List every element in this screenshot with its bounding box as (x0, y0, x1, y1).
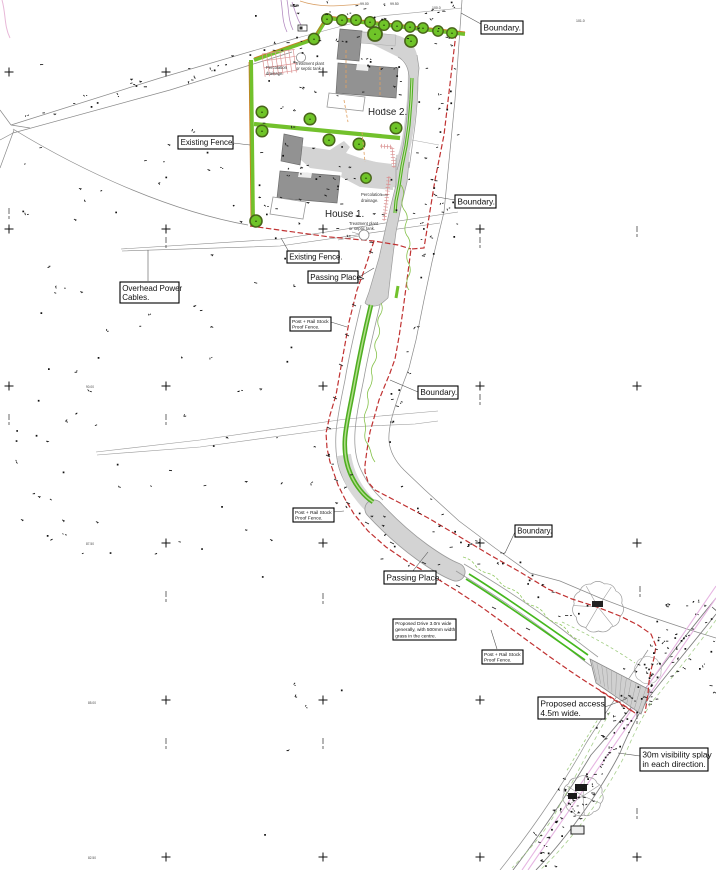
svg-text:30m visibility splay: 30m visibility splay (642, 749, 712, 759)
svg-text:Percolation: Percolation (266, 65, 288, 70)
svg-text:House 1.: House 1. (325, 209, 364, 220)
svg-text:87.50: 87.50 (86, 542, 94, 546)
svg-text:98.00: 98.00 (290, 4, 299, 8)
svg-text:Post + Rail Stock: Post + Rail Stock (292, 319, 329, 325)
svg-text:or septic tank.: or septic tank. (296, 66, 322, 71)
svg-text:90.00: 90.00 (86, 385, 94, 389)
svg-text:Existing Fence.: Existing Fence. (181, 138, 235, 147)
svg-text:99.50: 99.50 (390, 2, 399, 6)
svg-text:Boundary.: Boundary. (457, 196, 495, 206)
svg-text:99.00: 99.00 (360, 2, 369, 6)
svg-text:Boundary.: Boundary. (483, 22, 521, 32)
svg-text:Passing Place.: Passing Place. (386, 572, 441, 582)
svg-text:Cables.: Cables. (122, 293, 149, 302)
svg-text:Proposed Drive 3.0m wide: Proposed Drive 3.0m wide (395, 621, 452, 627)
svg-text:Percolation: Percolation (361, 192, 383, 197)
svg-text:drainage.: drainage. (266, 71, 283, 76)
svg-text:House 2.: House 2. (368, 107, 407, 118)
svg-text:101.0: 101.0 (576, 19, 585, 23)
svg-text:Passing Place.: Passing Place. (310, 273, 363, 282)
svg-text:drainage.: drainage. (361, 198, 378, 203)
svg-text:Proposed access: Proposed access (540, 698, 604, 708)
svg-text:100.0: 100.0 (432, 6, 441, 10)
svg-text:Proof Fence.: Proof Fence. (484, 658, 511, 664)
svg-text:Proof Fence.: Proof Fence. (295, 516, 322, 522)
svg-text:Post + Rail Stock: Post + Rail Stock (484, 652, 521, 658)
svg-text:generally, with 500mm width: generally, with 500mm width (395, 627, 455, 633)
svg-text:Existing Fence.: Existing Fence. (289, 253, 342, 262)
svg-text:Boundary.: Boundary. (517, 527, 552, 536)
svg-text:or septic tank.: or septic tank. (349, 226, 375, 231)
svg-text:Overhead Power: Overhead Power (122, 284, 182, 293)
svg-text:4.5m wide.: 4.5m wide. (540, 708, 581, 718)
svg-text:Proof Fence.: Proof Fence. (292, 325, 319, 331)
svg-text:in each direction.: in each direction. (642, 759, 705, 769)
svg-text:grass in the centre.: grass in the centre. (395, 633, 436, 639)
svg-text:Boundary.: Boundary. (420, 388, 457, 397)
svg-text:85.00: 85.00 (88, 701, 96, 705)
svg-text:82.50: 82.50 (88, 856, 96, 860)
svg-text:Post + Rail Stock: Post + Rail Stock (295, 510, 332, 516)
